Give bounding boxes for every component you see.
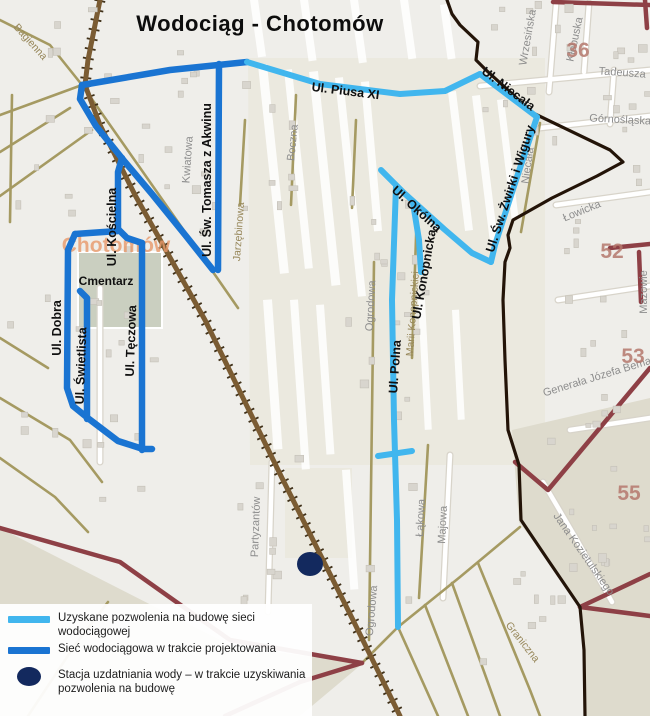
map-window: ChotomówWrzesińskaKłobuskaTadeuszaGórnoś… bbox=[0, 0, 650, 716]
building bbox=[270, 105, 275, 113]
street-label: Tadeusza bbox=[598, 65, 647, 80]
building bbox=[600, 296, 606, 302]
legend-panel: Uzyskane pozwolenia na budowę sieci wodo… bbox=[0, 604, 312, 716]
building bbox=[551, 596, 555, 605]
white-road bbox=[556, 192, 650, 205]
building bbox=[346, 318, 352, 327]
building bbox=[591, 340, 596, 346]
building bbox=[35, 165, 39, 171]
legend-label: pozwolenia na budowę bbox=[58, 682, 305, 696]
building bbox=[98, 442, 104, 447]
building bbox=[369, 357, 375, 364]
building bbox=[610, 524, 617, 529]
building bbox=[289, 174, 295, 180]
street-label: Wrzesińska bbox=[517, 8, 539, 67]
building bbox=[573, 228, 579, 233]
street-label: Graniczna bbox=[503, 620, 542, 665]
building bbox=[622, 330, 627, 337]
building bbox=[539, 617, 546, 622]
building bbox=[527, 87, 535, 94]
building bbox=[532, 47, 536, 56]
building bbox=[142, 124, 150, 128]
minor-road bbox=[0, 338, 48, 368]
street-label: Mazowie bbox=[638, 270, 650, 313]
building bbox=[366, 565, 374, 572]
building bbox=[602, 411, 608, 416]
minor-road bbox=[478, 563, 540, 716]
poi-label: Cmentarz bbox=[79, 274, 134, 288]
shaded-area bbox=[78, 252, 162, 328]
building bbox=[570, 509, 574, 515]
building bbox=[629, 104, 636, 110]
building bbox=[613, 406, 620, 413]
building bbox=[84, 127, 92, 133]
building bbox=[565, 248, 570, 253]
building bbox=[22, 412, 28, 417]
building bbox=[53, 428, 58, 437]
plot-number-label: 53 bbox=[621, 345, 644, 368]
legend-item-station: Stacja uzdatniania wody – w trakcie uzys… bbox=[0, 665, 312, 696]
network-street-label: Ul. Dobra bbox=[50, 299, 64, 356]
building bbox=[638, 45, 647, 53]
building bbox=[381, 260, 388, 264]
field-strip bbox=[300, 0, 317, 61]
building bbox=[409, 483, 418, 490]
building bbox=[553, 136, 557, 145]
building bbox=[350, 196, 355, 205]
building bbox=[598, 554, 606, 563]
building bbox=[565, 296, 572, 304]
network-designed-segment bbox=[218, 64, 219, 270]
building bbox=[270, 548, 276, 554]
building bbox=[55, 22, 61, 29]
building bbox=[645, 92, 650, 97]
legend-label: wodociągowej bbox=[58, 625, 255, 639]
plot-number-label: 55 bbox=[617, 482, 641, 505]
building bbox=[603, 95, 611, 99]
building bbox=[97, 300, 102, 305]
building bbox=[150, 358, 158, 362]
building bbox=[100, 497, 106, 501]
building bbox=[555, 25, 560, 33]
street-label: Kwiatowa bbox=[180, 135, 195, 184]
street-label: Łąkowa bbox=[414, 498, 428, 537]
building bbox=[295, 455, 304, 462]
building bbox=[534, 595, 538, 604]
building bbox=[499, 7, 504, 11]
street-label: Majowa bbox=[436, 505, 450, 544]
building bbox=[53, 48, 60, 55]
network-street-label: Ul. Tęczowa bbox=[123, 304, 140, 377]
building bbox=[628, 58, 634, 63]
building bbox=[592, 525, 596, 530]
building bbox=[110, 415, 117, 422]
building bbox=[270, 538, 277, 546]
legend-label: Uzyskane pozwolenia na budowę sieci bbox=[58, 611, 255, 625]
minor-road bbox=[0, 130, 92, 196]
building bbox=[256, 483, 263, 489]
building bbox=[593, 421, 600, 427]
building bbox=[613, 106, 619, 113]
building bbox=[190, 72, 196, 77]
building bbox=[65, 194, 72, 198]
minor-road bbox=[0, 458, 88, 532]
building bbox=[106, 350, 111, 357]
building bbox=[139, 154, 144, 162]
building bbox=[69, 210, 76, 216]
field-strip bbox=[400, 0, 416, 59]
building bbox=[398, 273, 405, 280]
building bbox=[182, 78, 188, 83]
building bbox=[8, 322, 14, 329]
designed-line-symbol bbox=[8, 647, 50, 654]
building bbox=[558, 596, 566, 604]
building bbox=[238, 503, 243, 510]
shaded-area bbox=[285, 468, 352, 558]
building bbox=[269, 180, 275, 185]
building bbox=[277, 202, 281, 210]
building bbox=[375, 253, 380, 260]
building bbox=[406, 597, 412, 604]
plot-number-label: 52 bbox=[600, 240, 623, 263]
legend-label: Sieć wodociągowa w trakcie projektowania bbox=[58, 642, 276, 656]
building bbox=[521, 572, 525, 577]
building bbox=[177, 51, 183, 55]
network-street-label: Ul. Św. Tomasza z Akwinu bbox=[199, 103, 214, 257]
building bbox=[16, 201, 21, 209]
building bbox=[83, 440, 91, 448]
network-street-label: Ul. Świetlista bbox=[72, 326, 90, 405]
building bbox=[528, 622, 536, 628]
building bbox=[289, 186, 298, 191]
building bbox=[535, 1, 542, 8]
building bbox=[633, 165, 640, 172]
building bbox=[611, 466, 617, 471]
minor-road bbox=[10, 95, 12, 222]
building bbox=[21, 427, 28, 435]
building bbox=[614, 52, 618, 59]
building bbox=[483, 107, 488, 111]
field-strip bbox=[440, 4, 456, 60]
building bbox=[581, 348, 586, 356]
street-label: Jarzębinowa bbox=[231, 202, 247, 262]
building bbox=[586, 423, 591, 427]
building bbox=[574, 239, 579, 248]
building bbox=[617, 48, 624, 54]
building bbox=[575, 219, 580, 223]
legend-item-designed: Sieć wodociągowa w trakcie projektowania bbox=[0, 639, 312, 665]
building bbox=[243, 81, 251, 88]
building bbox=[480, 659, 487, 665]
street-label: Górnośląska bbox=[589, 112, 650, 127]
building bbox=[267, 569, 275, 574]
building bbox=[548, 438, 556, 445]
street-label: Ogrodowa bbox=[364, 584, 380, 636]
building bbox=[88, 8, 97, 12]
building bbox=[644, 526, 649, 532]
water-station-marker bbox=[297, 552, 323, 576]
field-strip bbox=[350, 0, 367, 63]
building bbox=[46, 116, 54, 123]
building bbox=[565, 4, 573, 13]
building bbox=[514, 578, 521, 584]
building bbox=[602, 394, 608, 400]
minor-road bbox=[240, 120, 245, 205]
building bbox=[138, 486, 145, 491]
building bbox=[110, 98, 119, 103]
building bbox=[491, 25, 497, 31]
legend-label: Stacja uzdatniania wody – w trakcie uzys… bbox=[58, 668, 305, 682]
building bbox=[503, 100, 507, 107]
field-strip bbox=[250, 0, 266, 57]
plot-number-label: 36 bbox=[566, 39, 589, 62]
building bbox=[636, 179, 641, 186]
building bbox=[165, 147, 172, 153]
legend-item-obtained: Uzyskane pozwolenia na budowę sieci wodo… bbox=[0, 608, 312, 639]
network-street-label: Ul. Kościelna bbox=[105, 187, 119, 267]
building bbox=[623, 127, 627, 132]
building bbox=[360, 380, 369, 388]
building bbox=[405, 397, 410, 401]
obtained-line-symbol bbox=[8, 616, 50, 623]
minor-road bbox=[398, 627, 438, 716]
station-dot-symbol bbox=[17, 667, 41, 686]
building bbox=[165, 185, 170, 189]
building bbox=[178, 91, 183, 97]
building bbox=[570, 563, 578, 571]
building bbox=[645, 537, 650, 542]
street-label: Partyzantów bbox=[249, 496, 263, 557]
major-road bbox=[645, 0, 647, 28]
building bbox=[372, 219, 376, 224]
